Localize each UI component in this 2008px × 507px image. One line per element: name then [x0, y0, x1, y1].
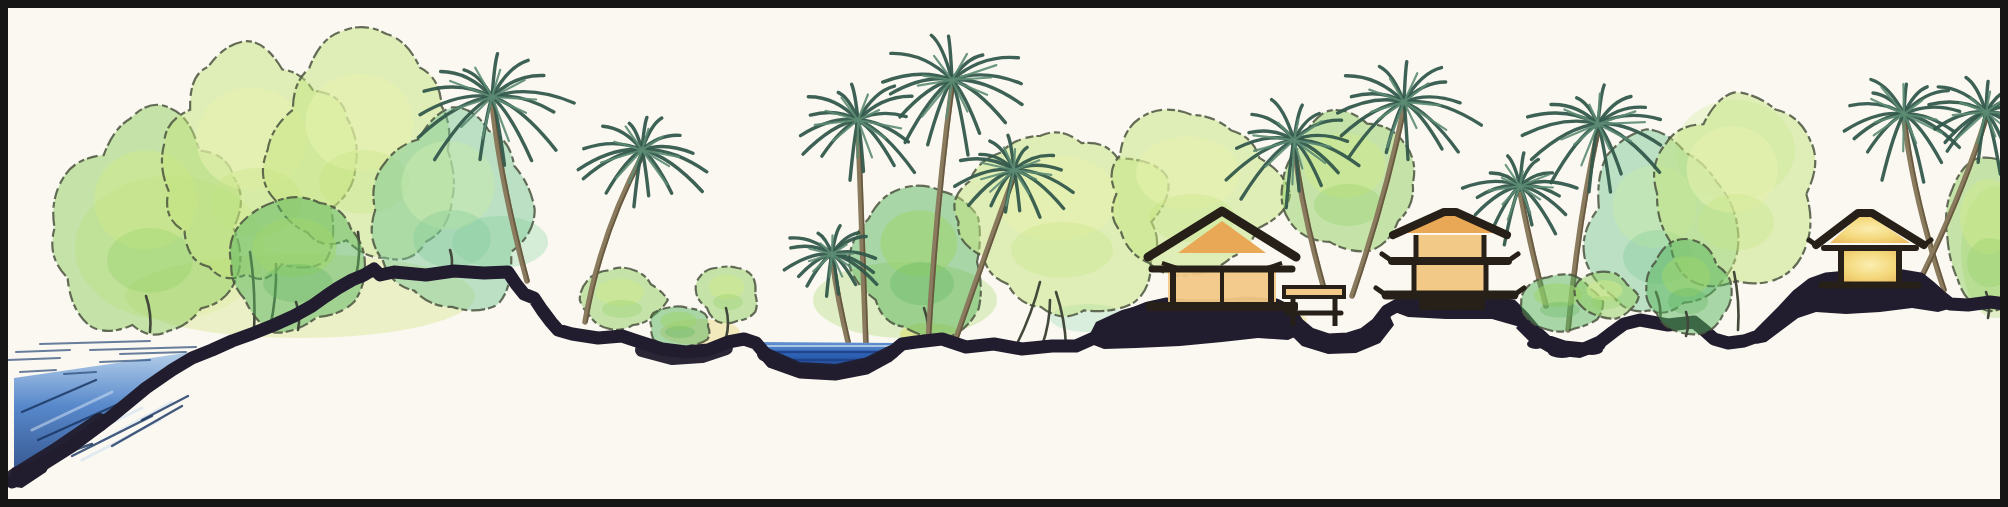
- framed-drawing: [0, 0, 2008, 507]
- tree-canopy: [650, 306, 709, 347]
- site-section-sketch: [0, 0, 2008, 507]
